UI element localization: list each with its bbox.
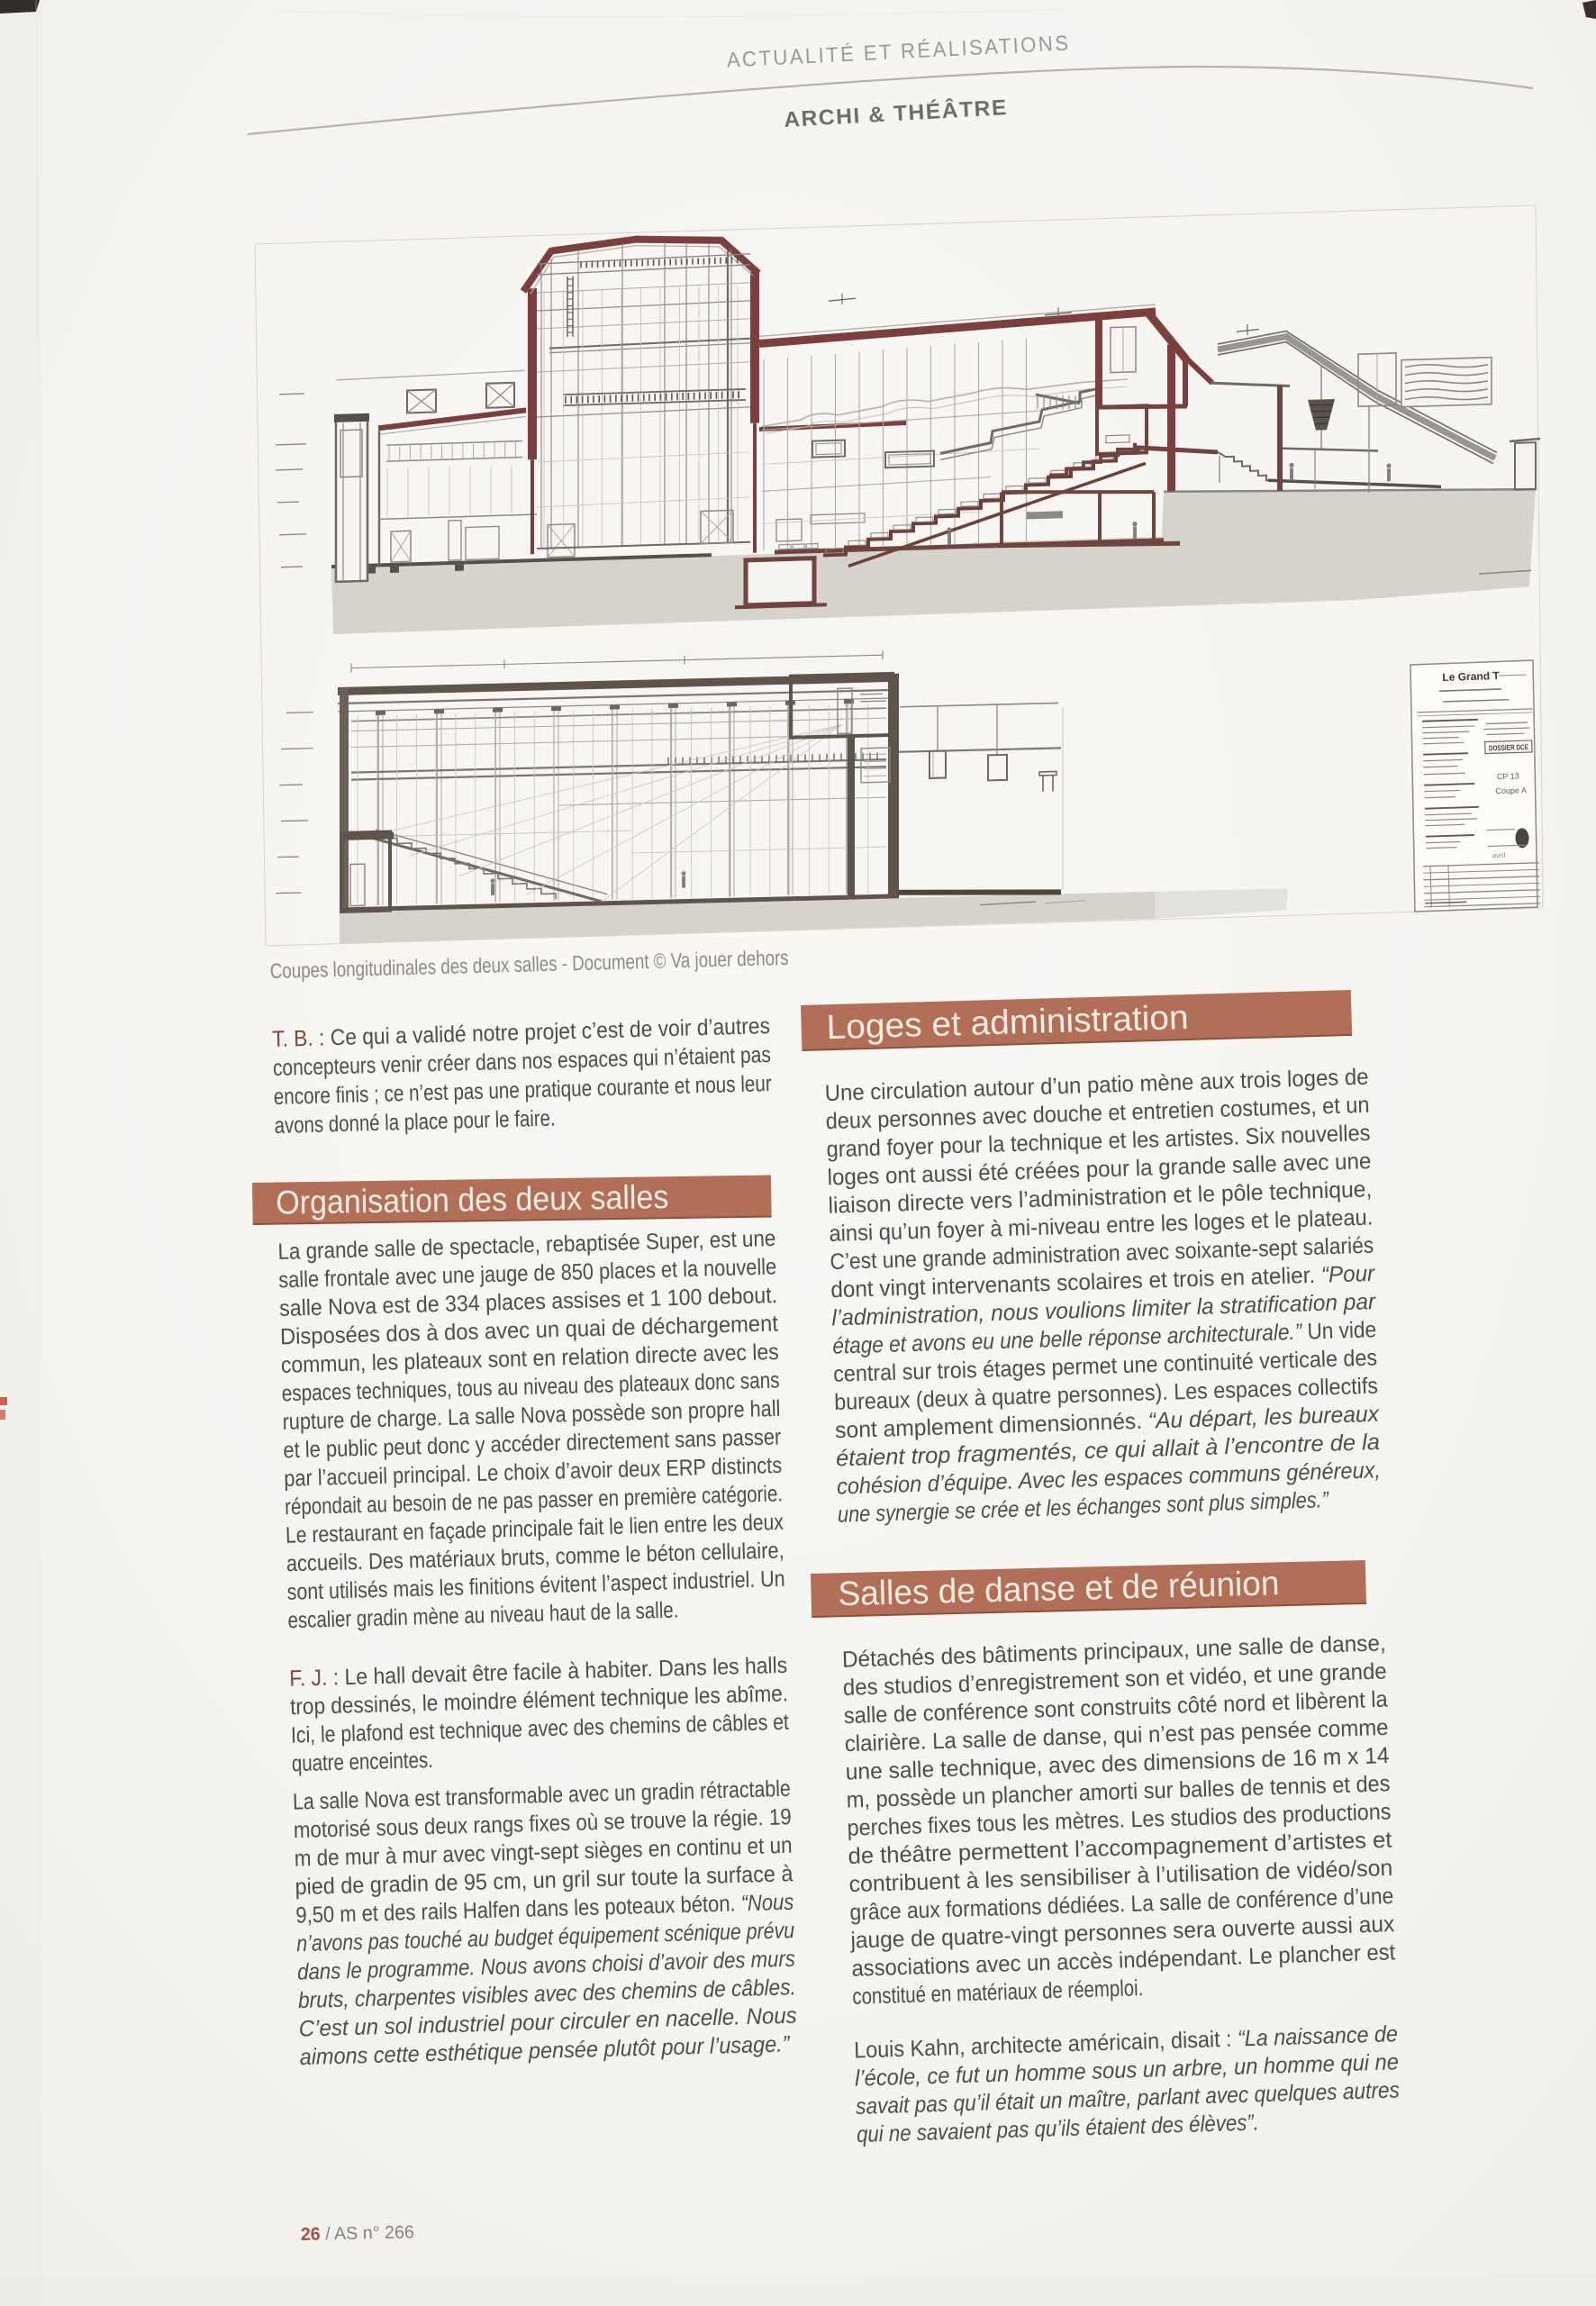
svg-text:CP 13: CP 13	[1497, 771, 1519, 781]
svg-text:26 / AS n° 266: 26 / AS n° 266	[301, 2222, 414, 2245]
svg-text:Organisation des deux salles: Organisation des deux salles	[276, 1178, 669, 1221]
svg-text:DOSSIER DCE: DOSSIER DCE	[1489, 742, 1529, 752]
svg-text:Coupe A: Coupe A	[1495, 785, 1527, 795]
svg-text:quatre enceintes.: quatre enceintes.	[291, 1748, 433, 1776]
svg-text:Le Grand T: Le Grand T	[1442, 669, 1500, 684]
svg-text:avril: avril	[1492, 851, 1505, 859]
